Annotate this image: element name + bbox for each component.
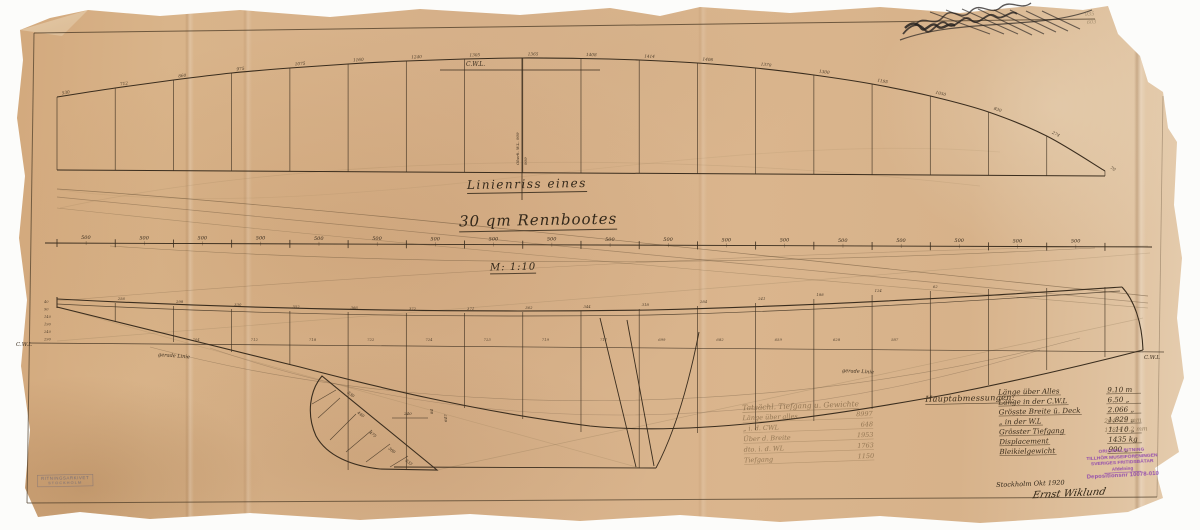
margin-number: 90 bbox=[44, 308, 49, 312]
pencil-construction-lines bbox=[57, 148, 1150, 470]
keel-dim-label: 647 bbox=[443, 414, 448, 422]
sheer-offset-label: 1305 bbox=[469, 52, 480, 57]
deck-offset-label: 371 bbox=[467, 306, 474, 311]
deck-offset-label: 352 bbox=[292, 304, 300, 309]
sheer-offset-label: 975 bbox=[236, 66, 245, 72]
cwl-top-label: C.W.L. bbox=[466, 61, 485, 68]
waterline-offset-label: 711 bbox=[600, 337, 607, 342]
sheer-offset-label: 1300 bbox=[819, 69, 831, 75]
deck-offset-label: 188 bbox=[816, 292, 824, 297]
waterline-offset-label: 704 bbox=[192, 337, 200, 342]
deck-offset-label: 62 bbox=[933, 284, 938, 289]
waterline-offset-label: 722 bbox=[367, 337, 375, 342]
station-spacing-label: 500 bbox=[1071, 239, 1081, 245]
straight-line-label: gerade Linie bbox=[842, 368, 874, 376]
sheer-offset-label: 1414 bbox=[644, 54, 655, 59]
keel-chord-label: 333 bbox=[404, 458, 413, 467]
station-spacing-label: 500 bbox=[256, 236, 266, 242]
drawing-title-line1: Linienriss eines bbox=[467, 176, 587, 194]
deck-offset-label: 256 bbox=[117, 296, 126, 301]
corner-stamp: RITNINGSARKIVET STOCKHOLM bbox=[37, 474, 93, 487]
waterline-offset-label: 712 bbox=[251, 337, 259, 342]
pencil-row: Tiefgang1150 bbox=[744, 453, 874, 465]
margin-number: 290 bbox=[43, 338, 52, 342]
vertical-note: Oberk. W.L. 909 bbox=[515, 132, 520, 165]
deck-offset-label: 318 bbox=[642, 302, 650, 307]
pencil-measurements-table: Tatsächl. Tiefgang u. Gewichte Länge übe… bbox=[742, 396, 874, 467]
scanned-lines-plan: 5307128609751075116012401305136514081414… bbox=[0, 0, 1200, 530]
centerline bbox=[45, 243, 1152, 247]
sheer-offset-label: 1160 bbox=[353, 57, 364, 63]
straight-line-label: gerade Linie bbox=[158, 352, 190, 360]
station-spacing-label: 500 bbox=[547, 237, 557, 243]
deck-offset-label: 366 bbox=[351, 305, 359, 310]
archive-stamp-purple: ORIGINALRITNING TILLHÖR MUSEIFÖRENINGEN … bbox=[1078, 445, 1166, 480]
sheer-offset-label: 1075 bbox=[295, 61, 306, 67]
deck-offset-label: 298 bbox=[175, 299, 184, 304]
waterline-offset-label: 724 bbox=[425, 337, 433, 342]
waterline-curves bbox=[57, 189, 1148, 308]
station-spacing-label: 500 bbox=[314, 236, 324, 242]
station-spacing-label: 500 bbox=[372, 236, 382, 242]
station-spacing-label: 500 bbox=[139, 235, 149, 241]
keel-fin bbox=[310, 376, 437, 470]
scale-label: M: 1:10 bbox=[490, 262, 536, 275]
deck-offset-label: 330 bbox=[234, 302, 242, 307]
sheer-offset-label: 1050 bbox=[935, 90, 947, 97]
waterline-offset-label: 659 bbox=[775, 337, 783, 342]
cwl-right-label: C.W.L bbox=[1144, 355, 1160, 361]
waterline-offset-label: 718 bbox=[309, 337, 317, 342]
station-spacing-label: 500 bbox=[838, 238, 848, 244]
keel-dim-label: 84 bbox=[429, 408, 434, 414]
waterline-offset-label: 682 bbox=[716, 337, 724, 342]
station-spacing-label: 500 bbox=[954, 238, 964, 244]
keel-chord-label: 300 bbox=[387, 446, 396, 455]
deck-offset-label: 344 bbox=[583, 304, 591, 309]
waterline-offset-label: 719 bbox=[542, 337, 550, 342]
sheer-offset-label: 830 bbox=[993, 106, 1003, 113]
pencil-row: Länge über alles8997 bbox=[742, 411, 872, 423]
station-spacing-label: 500 bbox=[430, 236, 440, 242]
sheer-offset-label: 1240 bbox=[411, 54, 422, 59]
sheet-frame bbox=[27, 19, 1163, 503]
sheer-offset-label: 1406 bbox=[702, 57, 713, 63]
margin-number: 190 bbox=[44, 323, 52, 327]
margin-number: 140 bbox=[44, 315, 52, 319]
sheer-offset-label: 70 bbox=[1109, 165, 1116, 172]
waterline-offset-label: 587 bbox=[891, 337, 899, 342]
station-spacing-label: 500 bbox=[722, 237, 732, 243]
deck-offset-label: 241 bbox=[757, 296, 765, 301]
sheer-offset-label: 1370 bbox=[761, 62, 772, 68]
sheer-offset-label: 1195 bbox=[877, 78, 889, 85]
keel-chord-label: 475 bbox=[368, 429, 378, 439]
sheer-offset-label: 1408 bbox=[586, 52, 597, 57]
station-spacing-label: 500 bbox=[605, 237, 615, 243]
hull-profile bbox=[30, 287, 1164, 429]
pencil-number: 603 bbox=[1087, 19, 1097, 26]
margin-number: 240 bbox=[43, 330, 52, 334]
waterline-offset-label: 723 bbox=[484, 337, 492, 342]
station-spacing-label: 500 bbox=[489, 237, 499, 243]
station-spacing-label: 500 bbox=[663, 237, 673, 243]
sheer-offset-label: 712 bbox=[120, 80, 129, 86]
margin-number: 40 bbox=[43, 300, 49, 304]
pencil-scribbles bbox=[900, 3, 1092, 40]
station-spacing-label: 500 bbox=[198, 235, 208, 241]
pencil-row: dto. i. d. WL1763 bbox=[744, 442, 874, 454]
station-spacing-label: 500 bbox=[780, 238, 790, 244]
drawing-title-line2: 30 qm Rennbootes bbox=[459, 210, 618, 233]
vertical-note: 909 bbox=[523, 157, 528, 165]
pencil-dimension-notes: 204 + 6 mm 178 + 5,2 mm bbox=[1104, 415, 1148, 434]
station-spacing-label: 500 bbox=[1013, 238, 1023, 244]
pencil-number: 935 bbox=[1085, 11, 1095, 18]
pencil-row: Über d. Breite1953 bbox=[743, 432, 873, 444]
deck-offset-label: 284 bbox=[699, 299, 708, 304]
waterline-offset-label: 628 bbox=[833, 337, 841, 342]
station-spacing-label: 500 bbox=[896, 238, 906, 244]
sheer-offset-label: 1365 bbox=[528, 51, 539, 56]
deck-offset-label: 362 bbox=[525, 305, 533, 310]
station-spacing-label: 500 bbox=[81, 235, 91, 241]
waterline-offset-label: 699 bbox=[658, 337, 666, 342]
deck-offset-label: 124 bbox=[875, 288, 883, 293]
cwl-left-label: C.W.L bbox=[16, 342, 32, 348]
deck-offset-label: 372 bbox=[409, 306, 417, 311]
keel-dim-label: 240 bbox=[403, 411, 412, 416]
pencil-row: „ i. d. CWL648 bbox=[743, 421, 873, 433]
sheer-offset-label: 274 bbox=[1050, 129, 1061, 138]
sheer-offset-label: 860 bbox=[178, 72, 187, 78]
pencil-table-header: Tatsächl. Tiefgang u. Gewichte bbox=[742, 399, 859, 412]
